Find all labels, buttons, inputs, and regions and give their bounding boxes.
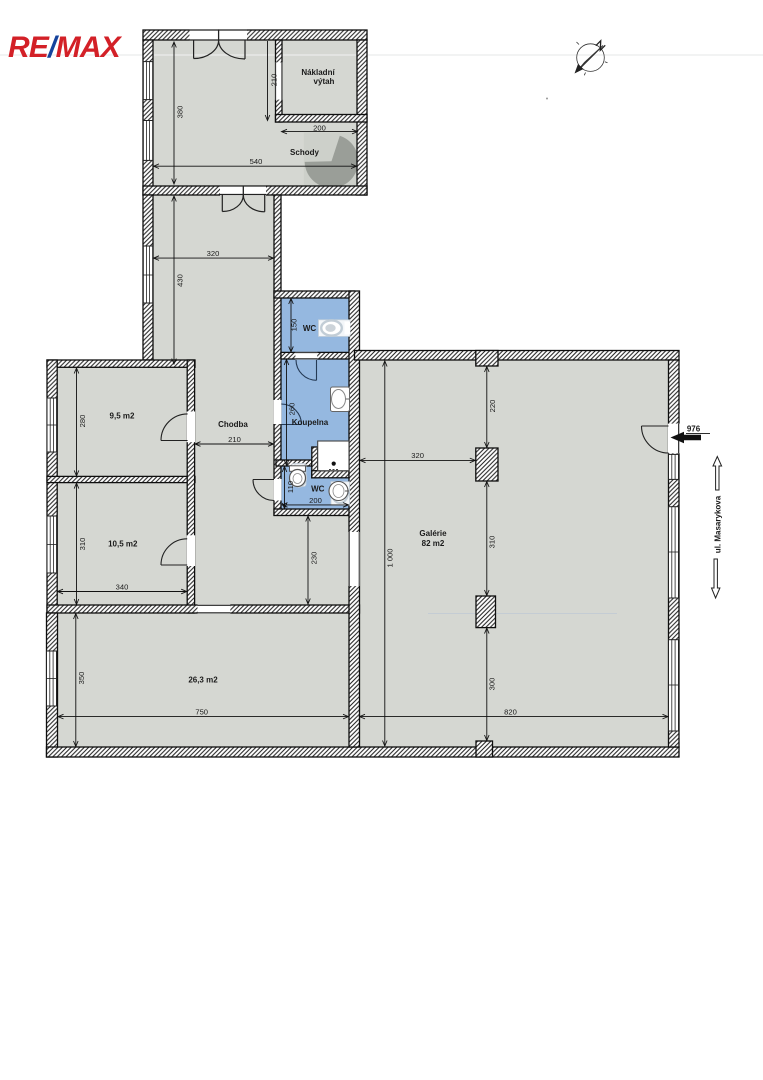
svg-text:350: 350 bbox=[77, 672, 86, 685]
svg-text:200: 200 bbox=[309, 496, 322, 505]
svg-text:230: 230 bbox=[310, 552, 319, 565]
svg-text:340: 340 bbox=[116, 582, 129, 591]
svg-text:Galérie: Galérie bbox=[419, 529, 447, 538]
svg-text:82 m2: 82 m2 bbox=[422, 539, 445, 548]
svg-text:1 000: 1 000 bbox=[386, 548, 395, 567]
svg-text:Chodba: Chodba bbox=[218, 420, 248, 429]
svg-text:110: 110 bbox=[286, 481, 295, 493]
svg-text:300: 300 bbox=[488, 678, 497, 691]
svg-text:ul. Masarykova: ul. Masarykova bbox=[713, 495, 722, 553]
svg-text:Nákladní: Nákladní bbox=[301, 68, 335, 77]
svg-text:380: 380 bbox=[176, 106, 185, 119]
svg-text:310: 310 bbox=[78, 538, 87, 551]
svg-text:320: 320 bbox=[207, 249, 220, 258]
svg-text:150: 150 bbox=[290, 319, 299, 332]
svg-text:Schody: Schody bbox=[290, 148, 319, 157]
svg-text:Koupelna: Koupelna bbox=[292, 418, 329, 427]
svg-text:280: 280 bbox=[78, 415, 87, 428]
svg-text:210: 210 bbox=[228, 435, 241, 444]
svg-text:26,3 m2: 26,3 m2 bbox=[188, 676, 218, 685]
svg-text:540: 540 bbox=[250, 157, 263, 166]
svg-text:820: 820 bbox=[504, 707, 517, 716]
svg-text:976: 976 bbox=[687, 425, 701, 434]
svg-text:200: 200 bbox=[313, 123, 326, 132]
svg-text:10,5 m2: 10,5 m2 bbox=[108, 540, 138, 549]
svg-text:9,5 m2: 9,5 m2 bbox=[110, 412, 135, 421]
svg-text:310: 310 bbox=[488, 536, 497, 549]
svg-text:260: 260 bbox=[288, 403, 297, 416]
svg-text:320: 320 bbox=[411, 451, 424, 460]
svg-text:220: 220 bbox=[488, 400, 497, 413]
svg-text:430: 430 bbox=[176, 274, 185, 287]
svg-text:210: 210 bbox=[270, 74, 279, 87]
svg-text:750: 750 bbox=[195, 707, 208, 716]
svg-text:WC: WC bbox=[311, 485, 325, 494]
svg-text:WC: WC bbox=[303, 324, 317, 333]
svg-text:výtah: výtah bbox=[314, 77, 335, 86]
svg-text:RE/MAX: RE/MAX bbox=[8, 31, 123, 64]
